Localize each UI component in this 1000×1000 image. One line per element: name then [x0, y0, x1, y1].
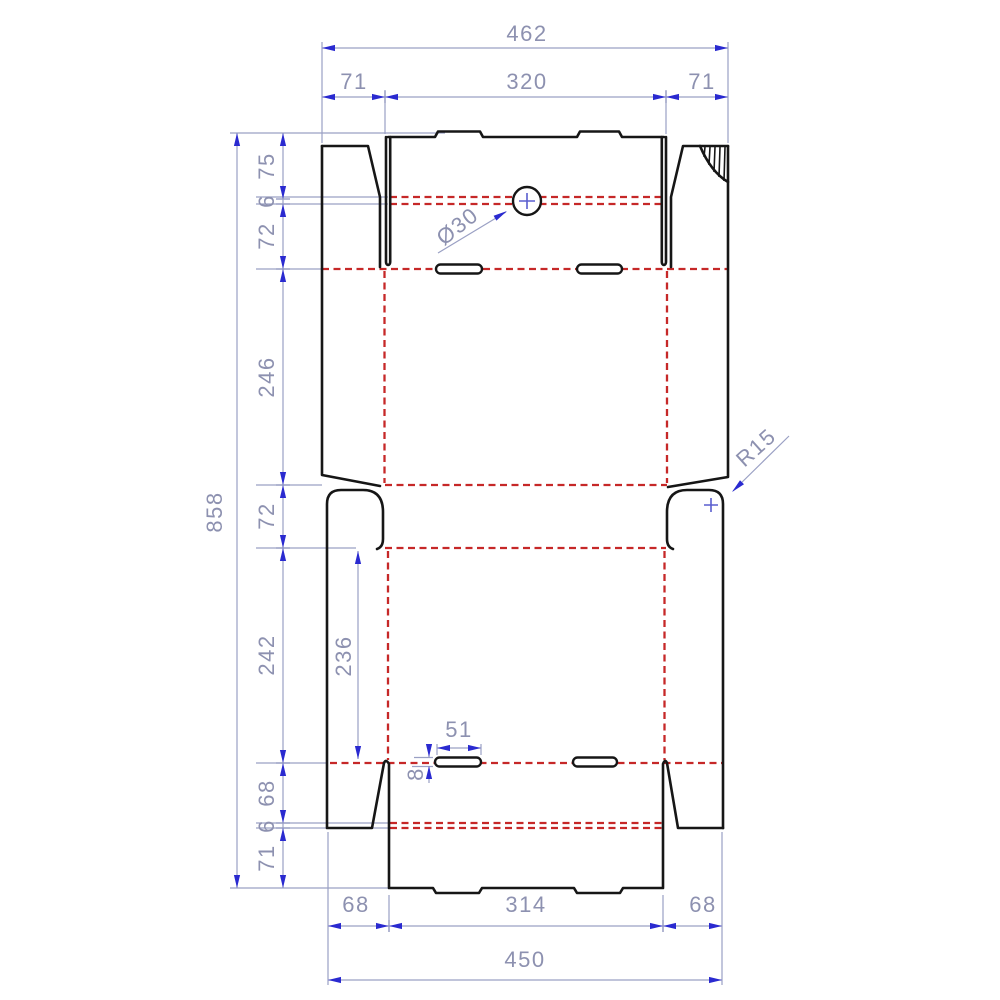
dimension-arrowhead	[709, 923, 722, 929]
lower-right-flap	[667, 763, 723, 828]
dimension-arrowhead	[328, 923, 341, 929]
dimension-arrowhead	[322, 45, 335, 51]
dimension-arrowhead	[280, 548, 286, 561]
dimension-arrowhead	[280, 472, 286, 485]
dimension-labels: 462 71 320 71 858 75 6 72 246 72 242 68 …	[202, 21, 781, 972]
slot	[577, 265, 622, 274]
top-left-flap	[322, 146, 380, 267]
dimension-arrowhead	[437, 745, 450, 751]
dim-top-left: 71	[340, 69, 367, 94]
dimension-arrowhead	[389, 923, 402, 929]
dim-left-71: 71	[254, 844, 279, 871]
dim-inner-height: 236	[331, 635, 356, 676]
dim-top-total: 462	[506, 21, 547, 46]
dim-left-total: 858	[202, 491, 227, 532]
dimension-arrowhead	[653, 94, 666, 100]
dim-bottom-center: 314	[505, 892, 546, 917]
dimension-arrowhead	[234, 875, 240, 888]
dimension-arrowhead	[280, 535, 286, 548]
slot	[436, 265, 482, 274]
dimension-arrowhead	[280, 269, 286, 282]
dimension-arrowhead	[666, 94, 679, 100]
dimension-arrowhead	[468, 745, 481, 751]
top-left-slit	[386, 137, 390, 265]
radius-center-mark	[704, 498, 718, 512]
annotation-corner-radius: R15	[731, 423, 781, 472]
annotation-hole-diameter: Ø30	[432, 202, 484, 250]
cad-drawing: 462 71 320 71 858 75 6 72 246 72 242 68 …	[0, 0, 1000, 1000]
dimension-arrowhead	[280, 875, 286, 888]
dimension-arrowhead	[280, 256, 286, 269]
dim-left-75: 75	[254, 152, 279, 179]
dim-top-right: 71	[688, 69, 715, 94]
dim-left-242: 242	[254, 634, 279, 675]
dimension-arrowhead	[280, 485, 286, 498]
dimension-arrowhead	[280, 828, 286, 841]
dim-left-246: 246	[254, 356, 279, 397]
dimension-arrowhead	[322, 94, 335, 100]
dimension-arrowhead	[715, 94, 728, 100]
dim-bottom-left: 68	[342, 892, 369, 917]
dimension-arrowhead	[385, 94, 398, 100]
dimension-arrowhead	[372, 94, 385, 100]
dim-top-center: 320	[506, 69, 547, 94]
dimension-arrowhead	[715, 45, 728, 51]
dim-bottom-right: 68	[689, 892, 716, 917]
dimension-arrowhead	[280, 204, 286, 217]
right-ear-and-body	[667, 490, 723, 828]
dimension-arrowhead	[376, 923, 389, 929]
dim-left-72a: 72	[254, 222, 279, 249]
dimension-arrowhead	[328, 977, 341, 983]
leader-arrowhead	[494, 211, 507, 221]
dimension-arrowhead	[355, 746, 361, 759]
dim-slot-height: 8	[403, 767, 428, 781]
dimension-arrowhead	[280, 133, 286, 146]
dim-left-72b: 72	[254, 502, 279, 529]
cut-lines	[322, 132, 728, 894]
dimension-arrowhead	[280, 763, 286, 776]
dim-slot-width: 51	[445, 717, 472, 742]
extension-lines	[230, 42, 789, 985]
dimension-arrowhead	[234, 133, 240, 146]
top-center-flap-edge	[388, 132, 664, 138]
dimension-arrowhead	[650, 923, 663, 929]
hatch-pattern	[704, 147, 725, 181]
slot	[573, 758, 617, 767]
dimension-arrowhead	[663, 923, 676, 929]
lock-slots	[435, 265, 622, 767]
dim-bottom-total: 450	[504, 947, 545, 972]
upper-body-right-edge	[668, 146, 728, 487]
dim-left-68: 68	[254, 779, 279, 806]
dimension-arrowhead	[280, 810, 286, 823]
slot	[435, 758, 481, 767]
dim-left-6a: 6	[254, 194, 279, 208]
dimension-arrowhead	[355, 551, 361, 564]
dim-left-6b: 6	[254, 819, 279, 833]
top-right-slit	[662, 137, 666, 265]
dimension-arrowhead	[426, 744, 432, 757]
dimension-arrowhead	[280, 750, 286, 763]
dimension-arrowhead	[709, 977, 722, 983]
technical-drawing-page: 462 71 320 71 858 75 6 72 246 72 242 68 …	[0, 0, 1000, 1000]
